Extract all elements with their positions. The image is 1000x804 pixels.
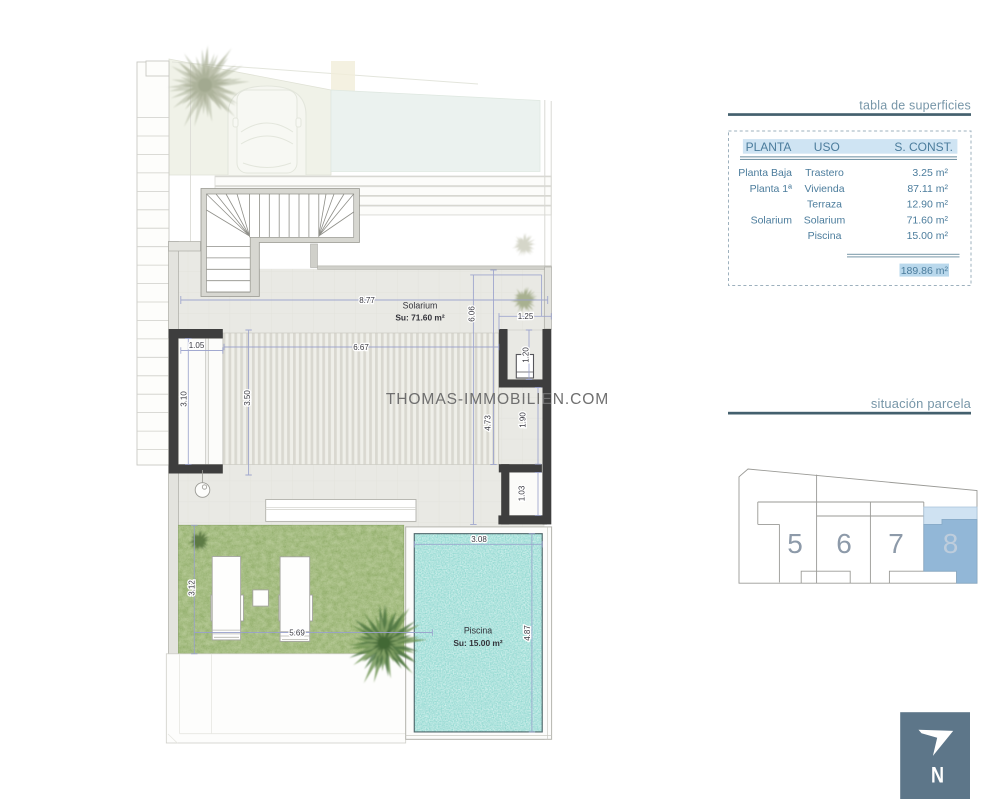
svg-text:Terraza: Terraza	[807, 199, 842, 211]
svg-text:THOMAS-IMMOBILIEN.COM: THOMAS-IMMOBILIEN.COM	[386, 391, 609, 408]
svg-text:189.86 m²: 189.86 m²	[901, 265, 949, 277]
svg-text:Su: 71.60 m²: Su: 71.60 m²	[395, 313, 445, 323]
svg-text:1.90: 1.90	[519, 412, 528, 428]
svg-text:1.25: 1.25	[518, 312, 534, 321]
svg-text:6: 6	[836, 528, 852, 559]
svg-text:PLANTA: PLANTA	[746, 140, 792, 154]
svg-text:6.67: 6.67	[353, 343, 369, 352]
svg-text:3.10: 3.10	[179, 391, 188, 407]
svg-text:Planta Baja: Planta Baja	[738, 167, 792, 179]
svg-text:71.60 m²: 71.60 m²	[907, 214, 949, 226]
svg-text:3.08: 3.08	[471, 535, 487, 544]
svg-text:3.25 m²: 3.25 m²	[912, 167, 948, 179]
svg-text:15.00 m²: 15.00 m²	[907, 230, 949, 242]
svg-text:Su: 15.00 m²: Su: 15.00 m²	[453, 638, 503, 648]
svg-text:tabla de superficies: tabla de superficies	[859, 99, 971, 113]
svg-text:Piscina: Piscina	[464, 626, 492, 636]
svg-text:87.11 m²: 87.11 m²	[907, 183, 948, 195]
svg-text:1.03: 1.03	[518, 485, 527, 501]
svg-text:6.06: 6.06	[468, 306, 477, 322]
svg-text:5: 5	[787, 528, 803, 559]
svg-text:N: N	[931, 764, 944, 788]
svg-text:7: 7	[888, 528, 904, 559]
svg-text:USO: USO	[814, 140, 840, 154]
svg-text:Vivienda: Vivienda	[804, 183, 844, 195]
svg-text:4.87: 4.87	[523, 625, 532, 641]
svg-text:Solarium: Solarium	[751, 214, 793, 226]
svg-text:8: 8	[943, 528, 959, 559]
svg-text:1.20: 1.20	[522, 347, 531, 363]
svg-text:5.69: 5.69	[289, 628, 305, 637]
svg-text:1.05: 1.05	[189, 341, 205, 350]
svg-text:4.73: 4.73	[484, 415, 493, 431]
svg-text:situación parcela: situación parcela	[871, 396, 972, 411]
svg-text:12.90 m²: 12.90 m²	[907, 199, 949, 211]
svg-text:S. CONST.: S. CONST.	[894, 140, 953, 154]
svg-text:Solarium: Solarium	[804, 214, 846, 226]
svg-text:8.77: 8.77	[359, 296, 375, 305]
svg-text:Planta 1ª: Planta 1ª	[750, 183, 793, 195]
svg-text:Solarium: Solarium	[403, 301, 438, 311]
svg-text:Trastero: Trastero	[805, 167, 844, 179]
svg-text:3.50: 3.50	[243, 390, 252, 406]
svg-text:Piscina: Piscina	[808, 230, 842, 242]
svg-text:3.12: 3.12	[188, 580, 197, 596]
